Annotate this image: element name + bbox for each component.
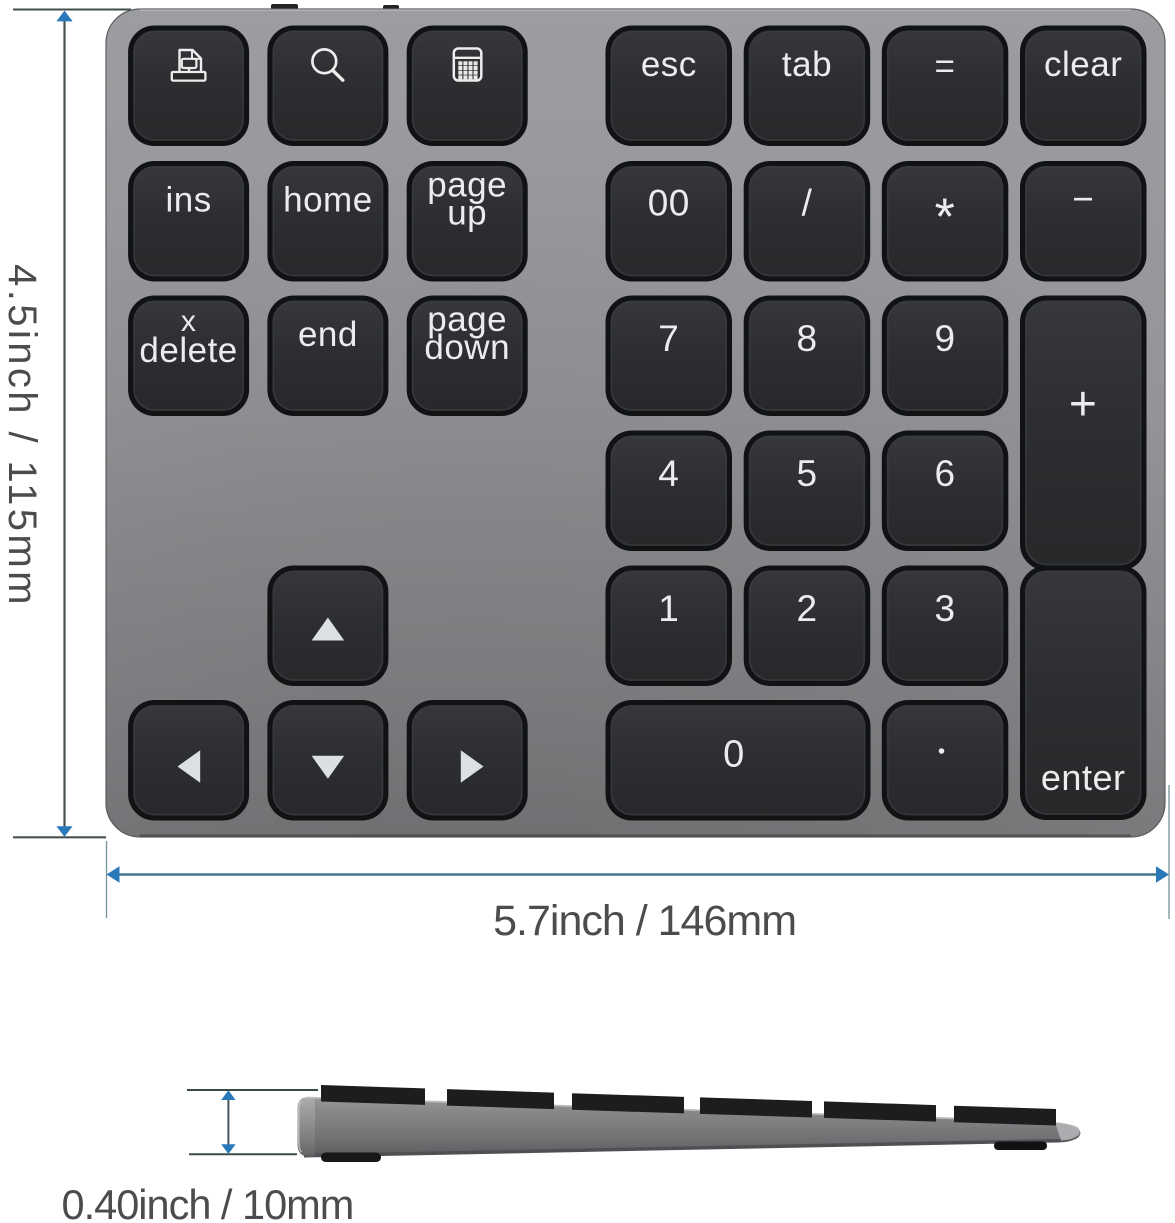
svg-text:4: 4 [658,453,679,494]
svg-text:ins: ins [165,181,211,220]
svg-text:8: 8 [796,318,817,359]
svg-text:4.5inch / 115mm: 4.5inch / 115mm [0,264,44,608]
svg-text:6: 6 [934,453,955,494]
svg-text:00: 00 [648,183,690,224]
svg-text:7: 7 [658,318,679,359]
svg-text:up: up [447,194,487,233]
svg-text:1: 1 [658,588,679,629]
svg-text:*: * [935,189,956,247]
svg-text:enter: enter [1041,757,1126,798]
svg-text:9: 9 [934,318,955,359]
svg-text:+: + [1069,378,1098,431]
svg-text:esc: esc [641,45,697,84]
svg-text:home: home [283,181,373,220]
svg-text:/: / [802,183,813,224]
svg-text:0.40inch / 10mm: 0.40inch / 10mm [62,1181,354,1223]
svg-text:tab: tab [782,45,832,84]
svg-text:2: 2 [796,588,817,629]
svg-text:3: 3 [934,588,955,629]
svg-text:−: − [1072,179,1094,220]
svg-text:end: end [298,315,358,354]
svg-text:=: = [935,47,956,86]
svg-text:5.7inch / 146mm: 5.7inch / 146mm [493,897,796,945]
svg-text:5: 5 [796,453,817,494]
svg-text:delete: delete [139,331,237,370]
svg-text:clear: clear [1044,45,1122,84]
svg-text:down: down [424,328,510,367]
svg-text:0: 0 [723,734,745,776]
